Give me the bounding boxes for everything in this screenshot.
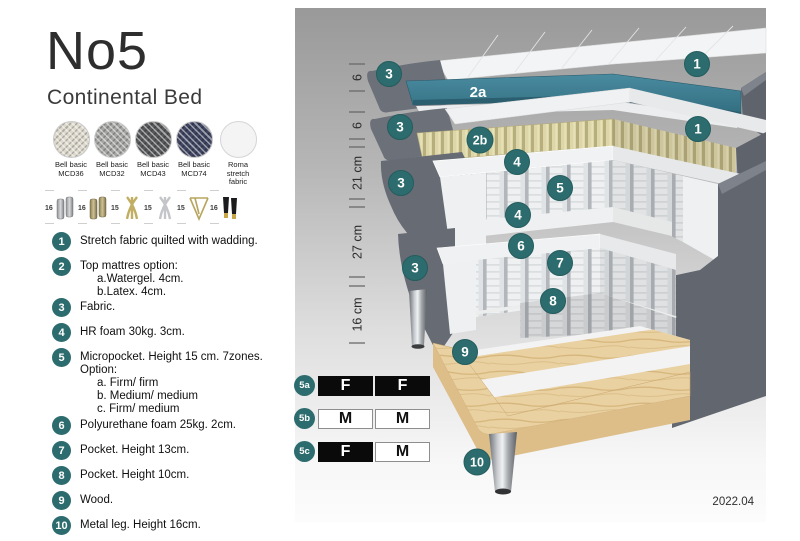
cylinder-silver-legs-icon [55, 195, 77, 221]
callout-4-bottom-label: 4 [514, 208, 522, 223]
callout-1-second: 1 [686, 117, 711, 142]
list-item-3: 3 Fabric. [52, 298, 290, 317]
swatch-code: stretch fabric [218, 170, 258, 187]
item-text: Pocket. Height 10cm. [80, 469, 189, 482]
firmness-badge-5c: 5c [294, 441, 315, 462]
callout-6: 6 [509, 234, 534, 259]
item-text: Fabric. [80, 301, 115, 314]
callout-3-mattress: 3 [389, 171, 414, 196]
callout-7: 7 [548, 251, 573, 276]
callout-2a-label: 2a [470, 84, 487, 101]
firmness-cell: F [375, 376, 430, 396]
item-text: Top mattres option: [80, 260, 184, 273]
callout-4-top: 4 [505, 150, 530, 175]
cross-gold-legs-icon [121, 195, 143, 221]
list-item-1: 1 Stretch fabric quilted with wadding. [52, 232, 290, 251]
leg-option-silver-cross: 15 [144, 188, 177, 228]
callout-1-top-label: 1 [693, 57, 701, 72]
swatch-roma: Romastretch fabric [218, 121, 258, 187]
firmness-cell: M [375, 409, 430, 429]
item-subtext: a. Firm/ firm [80, 377, 290, 390]
swatch-mcd74: Bell basicMCD74 [174, 121, 214, 187]
callout-5: 5 [548, 176, 573, 201]
item-text: Stretch fabric quilted with wadding. [80, 235, 258, 248]
swatch-code: MCD32 [92, 170, 132, 179]
callout-9: 9 [453, 340, 478, 365]
hairpin-gold-legs-icon [187, 195, 210, 221]
callout-6-label: 6 [517, 239, 525, 254]
firmness-row-5a: 5a F F [294, 375, 430, 396]
fabric-swatch-icon [176, 121, 213, 158]
firmness-cell: M [375, 442, 430, 462]
version-stamp: 2022.04 [690, 496, 754, 508]
callout-3-topper-label: 3 [385, 67, 393, 82]
leg-height: 16 [78, 205, 86, 212]
firmness-cell: F [318, 442, 373, 462]
item-subtext: c. Firm/ medium [80, 403, 290, 416]
item-number-badge: 9 [52, 491, 71, 510]
swatch-mcd36: Bell basicMCD36 [51, 121, 91, 187]
item-number-badge: 2 [52, 257, 71, 276]
metal-leg-back-foot [412, 344, 425, 349]
ruler-label-6-second: 6 [351, 122, 365, 129]
firmness-badge-5a: 5a [294, 375, 315, 396]
callout-3-mattress-label: 3 [397, 176, 405, 191]
leg-option-brass-cylinder: 16 [78, 188, 111, 228]
leg-height: 15 [144, 205, 152, 212]
callout-8: 8 [541, 289, 566, 314]
swatch-code: MCD74 [174, 170, 214, 179]
callout-3-topper: 3 [377, 62, 402, 87]
cylinder-brass-legs-icon [88, 195, 110, 221]
fabric-swatch-icon [135, 121, 172, 158]
callout-10-label: 10 [470, 456, 484, 470]
item-subtext: a.Watergel. 4cm. [80, 273, 184, 286]
callout-3-lowerbox-label: 3 [411, 261, 419, 276]
leg-option-gold-hairpin: 15 [177, 188, 210, 228]
item-number-badge: 8 [52, 466, 71, 485]
swatch-code: MCD43 [133, 170, 173, 179]
item-text: Polyurethane foam 25kg. 2cm. [80, 419, 236, 432]
ruler-label-6-top: 6 [351, 74, 365, 81]
callout-4-top-label: 4 [513, 155, 521, 170]
callout-8-label: 8 [549, 294, 557, 309]
item-number-badge: 3 [52, 298, 71, 317]
item-number-badge: 1 [52, 232, 71, 251]
cylinder-black-gold-legs-icon [220, 195, 240, 221]
callout-1-top: 1 [685, 52, 710, 77]
item-text: Wood. [80, 494, 113, 507]
callout-2b-label: 2b [473, 134, 488, 148]
ruler-label-27cm: 27 cm [351, 225, 365, 259]
metal-leg-front-foot [495, 489, 511, 495]
ruler-label-16cm: 16 cm [351, 297, 365, 331]
callout-9-label: 9 [461, 345, 469, 360]
item-subtext: b. Medium/ medium [80, 390, 290, 403]
item-number-badge: 4 [52, 323, 71, 342]
callout-3-second-label: 3 [396, 120, 404, 135]
fabric-swatch-icon [53, 121, 90, 158]
item-number-badge: 5 [52, 348, 71, 367]
item-text: Metal leg. Height 16cm. [80, 519, 201, 532]
leg-option-silver-cylinder: 16 [45, 188, 78, 228]
layer-legend-list: 1 Stretch fabric quilted with wadding. 2… [52, 232, 290, 541]
firmness-badge-5b: 5b [294, 408, 315, 429]
leg-option-gold-cross: 15 [111, 188, 144, 228]
firmness-cell: M [318, 409, 373, 429]
fabric-swatch-icon [94, 121, 131, 158]
list-item-8: 8 Pocket. Height 10cm. [52, 466, 290, 485]
list-item-4: 4 HR foam 30kg. 3cm. [52, 323, 290, 342]
firmness-cell: F [318, 376, 373, 396]
list-item-9: 9 Wood. [52, 491, 290, 510]
list-item-2: 2 Top mattres option: a.Watergel. 4cm. b… [52, 257, 290, 298]
callout-2b: 2b [467, 127, 493, 153]
cross-silver-legs-icon [154, 195, 176, 221]
list-item-7: 7 Pocket. Height 13cm. [52, 441, 290, 460]
leg-height: 15 [177, 205, 185, 212]
firmness-row-5c: 5c F M [294, 441, 430, 462]
callout-7-label: 7 [556, 256, 564, 271]
item-subtext: b.Latex. 4cm. [80, 286, 184, 299]
item-text: HR foam 30kg. 3cm. [80, 326, 185, 339]
callout-10: 10 [464, 449, 490, 475]
info-panel: No5 Continental Bed Bell basicMCD36 Bell… [0, 0, 295, 533]
item-number-badge: 7 [52, 441, 71, 460]
swatch-code: MCD36 [51, 170, 91, 179]
item-number-badge: 6 [52, 416, 71, 435]
callout-3-second: 3 [388, 115, 413, 140]
list-item-5: 5 Micropocket. Height 15 cm. 7zones. Opt… [52, 348, 290, 415]
callout-4-bottom: 4 [506, 203, 531, 228]
list-item-6: 6 Polyurethane foam 25kg. 2cm. [52, 416, 290, 435]
fabric-swatches: Bell basicMCD36 Bell basicMCD32 Bell bas… [51, 121, 259, 187]
callout-3-lowerbox: 3 [403, 256, 428, 281]
callout-5-label: 5 [556, 181, 564, 196]
swatch-mcd43: Bell basicMCD43 [133, 121, 173, 187]
fabric-swatch-icon [220, 121, 257, 158]
product-subtitle: Continental Bed [47, 86, 202, 110]
leg-options: 16 16 15 15 [45, 188, 243, 228]
item-text: Pocket. Height 13cm. [80, 444, 189, 457]
leg-height: 16 [45, 205, 53, 212]
leg-height: 15 [111, 205, 119, 212]
ruler-label-21cm: 21 cm [351, 156, 365, 190]
leg-height: 16 [210, 205, 218, 212]
leg-option-black-gold-cylinder: 16 [210, 188, 243, 228]
swatch-mcd32: Bell basicMCD32 [92, 121, 132, 187]
callout-1-second-label: 1 [694, 122, 702, 137]
firmness-row-5b: 5b M M [294, 408, 430, 429]
metal-leg-back [409, 289, 427, 347]
product-title: No5 [46, 20, 148, 82]
item-text: Micropocket. Height 15 cm. 7zones. Optio… [80, 351, 290, 377]
